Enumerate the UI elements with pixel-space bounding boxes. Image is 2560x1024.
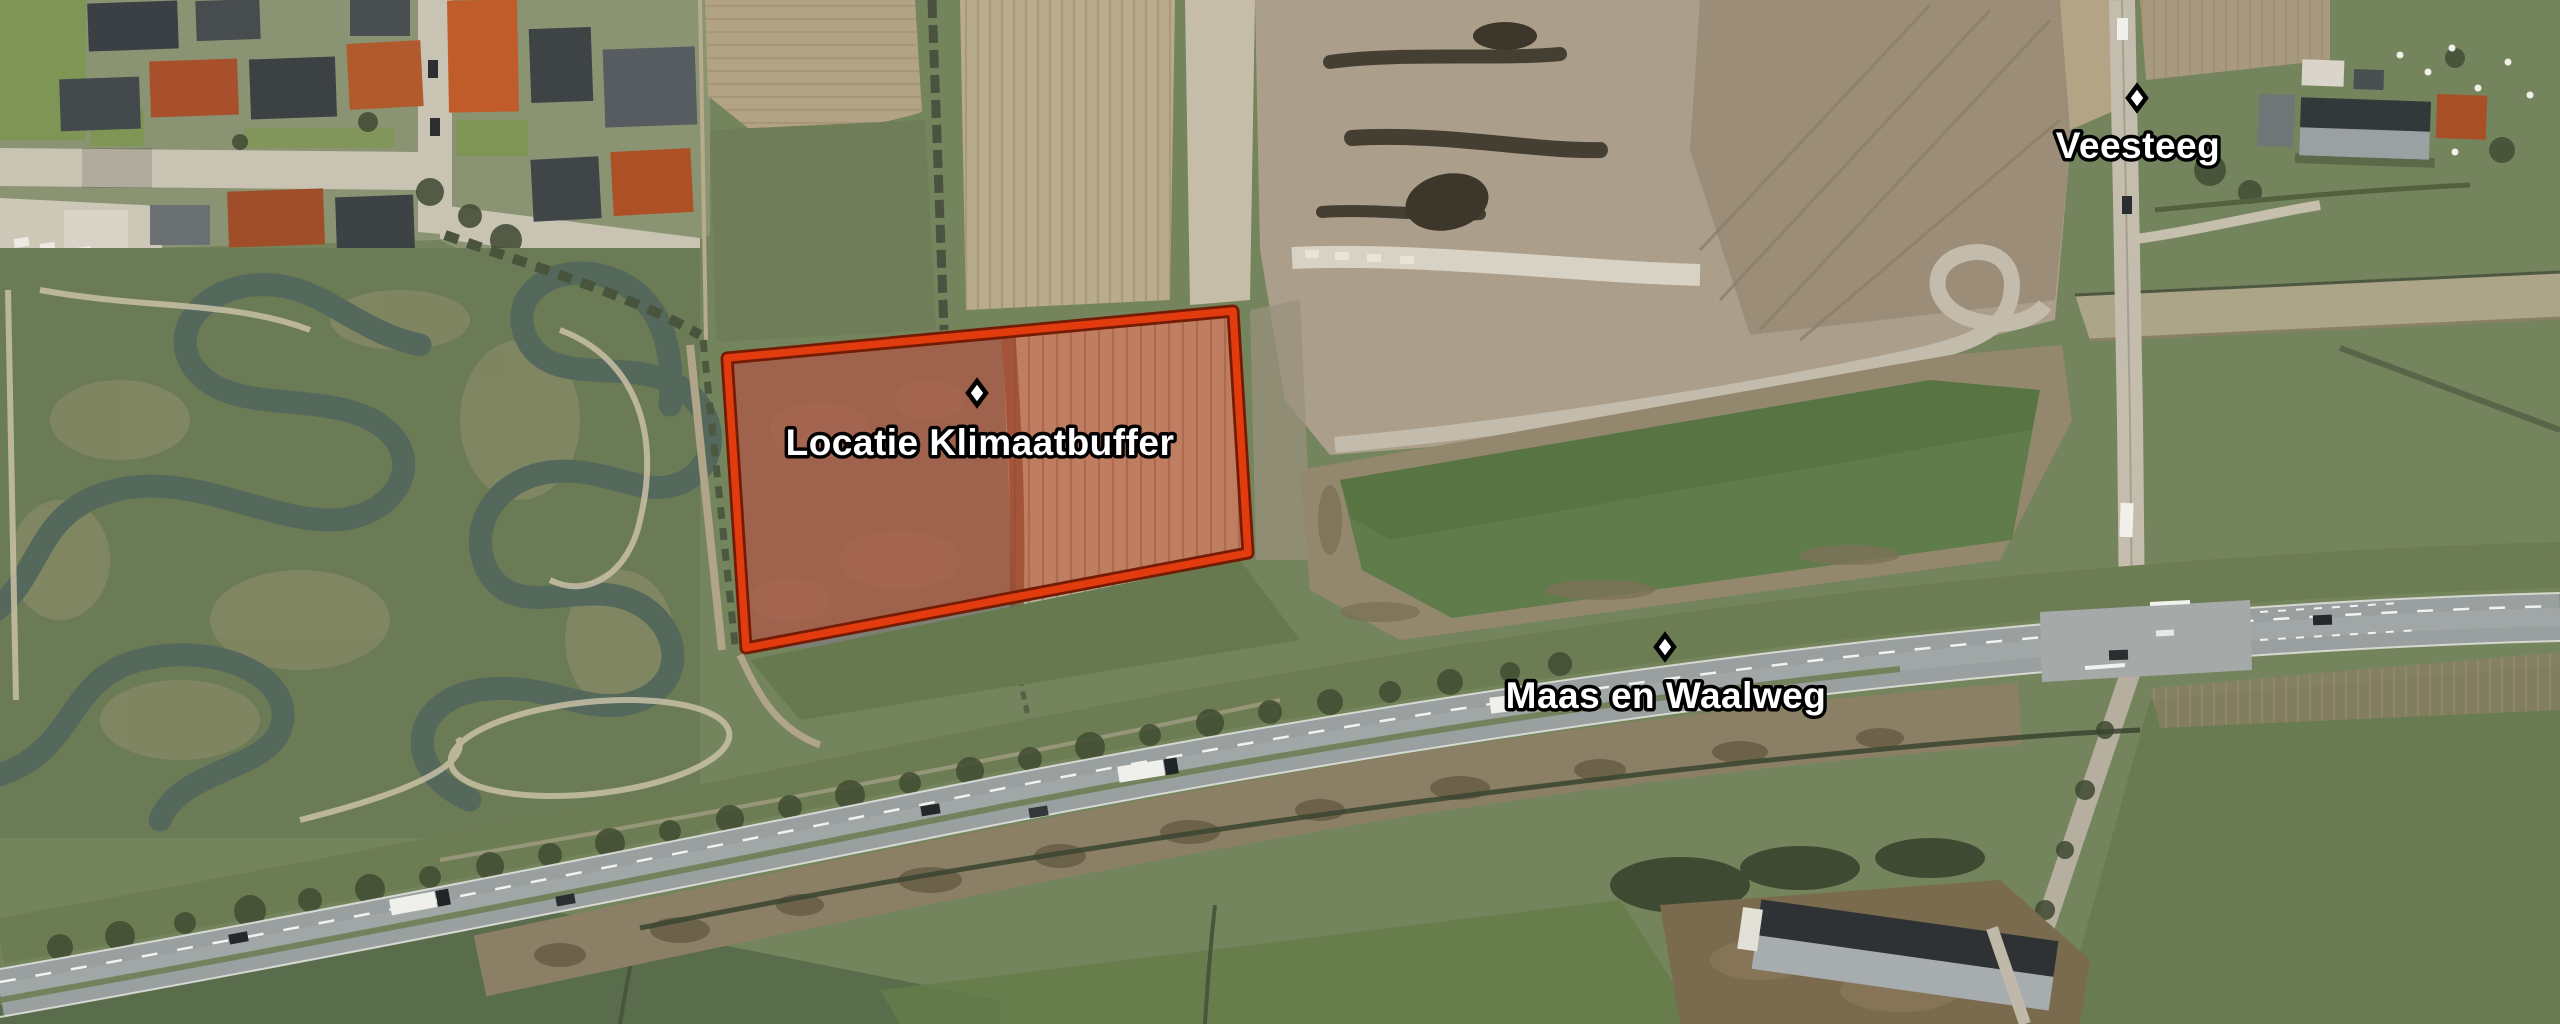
- aerial-map: Locatie Klimaatbuffer Maas en Waalweg Ve…: [0, 0, 2560, 1024]
- label-klimaatbuffer: Locatie Klimaatbuffer: [786, 422, 1175, 463]
- label-maas-en-waalweg: Maas en Waalweg: [1506, 675, 1827, 716]
- aerial-map-canvas: Locatie Klimaatbuffer Maas en Waalweg Ve…: [0, 0, 2560, 1024]
- meander-park: [0, 248, 734, 838]
- label-veesteeg: Veesteeg: [2056, 125, 2220, 166]
